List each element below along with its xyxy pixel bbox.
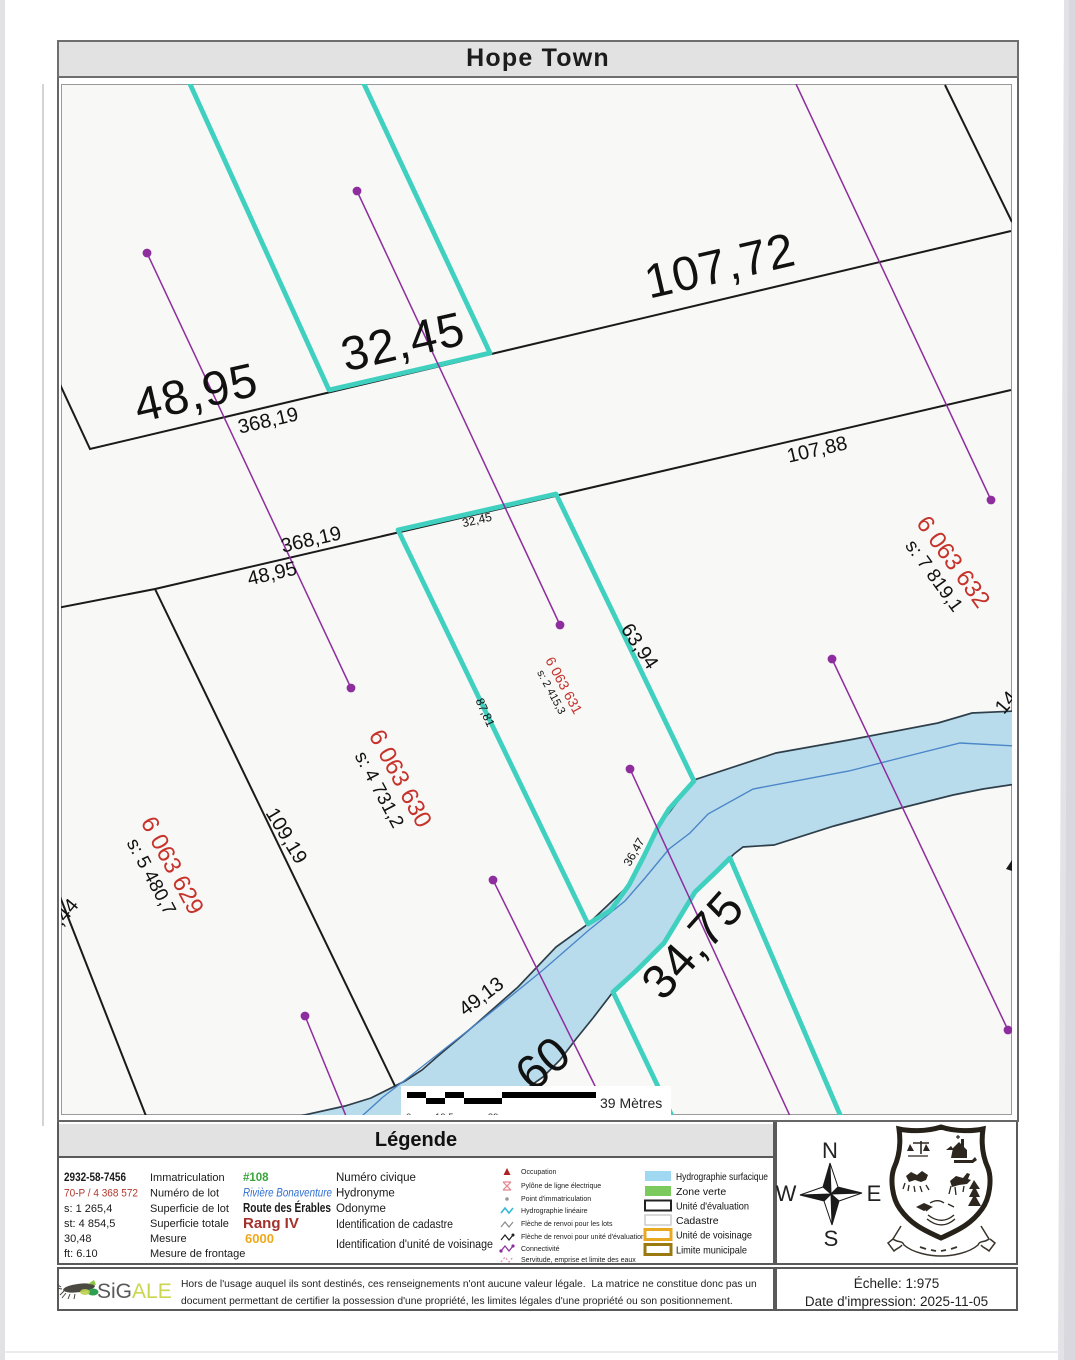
svg-text:Pylône de ligne électrique: Pylône de ligne électrique [521, 1183, 601, 1190]
svg-text:s: 1 265,4: s: 1 265,4 [64, 1203, 112, 1215]
svg-text:ft: 6.10: ft: 6.10 [64, 1248, 98, 1260]
svg-text:Superficie totale: Superficie totale [150, 1218, 229, 1230]
svg-text:0 19,5 39: 0 19,5 39 [406, 1112, 498, 1122]
svg-text:Immatriculation: Immatriculation [150, 1172, 225, 1184]
svg-text:Hydrographie surfacique: Hydrographie surfacique [676, 1171, 768, 1183]
svg-text:st: 4 854,5: st: 4 854,5 [64, 1218, 115, 1230]
svg-text:Rang IV: Rang IV [243, 1215, 299, 1232]
svg-text:E: E [867, 1181, 882, 1206]
svg-text:W: W [776, 1181, 797, 1206]
svg-text:Connectivité: Connectivité [521, 1246, 560, 1253]
svg-text:Identification d'unité de vois: Identification d'unité de voisinage [336, 1239, 493, 1251]
svg-text:N: N [822, 1138, 838, 1163]
svg-text:SiGALE: SiGALE [97, 1280, 172, 1303]
svg-text:Hydrographie linéaire: Hydrographie linéaire [521, 1208, 588, 1215]
svg-text:Flèche de renvoi pour les lots: Flèche de renvoi pour les lots [521, 1221, 613, 1228]
svg-text:Cadastre: Cadastre [676, 1215, 719, 1227]
svg-text:Flèche de renvoi pour unité d': Flèche de renvoi pour unité d'évaluation [521, 1234, 645, 1241]
svg-text:39 Mètres: 39 Mètres [600, 1095, 662, 1111]
svg-text:Zone verte: Zone verte [676, 1186, 726, 1198]
svg-text:Mesure: Mesure [150, 1233, 187, 1245]
svg-text:6000: 6000 [245, 1231, 274, 1246]
svg-text:Numéro de lot: Numéro de lot [150, 1188, 219, 1200]
svg-text:70-P / 4 368 572: 70-P / 4 368 572 [64, 1188, 138, 1200]
svg-text:Hydronyme: Hydronyme [336, 1188, 395, 1200]
svg-text:Odonyme: Odonyme [336, 1203, 386, 1215]
svg-text:Superficie de lot: Superficie de lot [150, 1203, 229, 1215]
svg-text:30,48: 30,48 [64, 1233, 92, 1245]
svg-text:Route des Érables: Route des Érables [243, 1200, 331, 1215]
svg-text:2932-58-7456: 2932-58-7456 [64, 1172, 126, 1184]
svg-text:Occupation: Occupation [521, 1169, 557, 1176]
svg-text:Identification de cadastre: Identification de cadastre [336, 1219, 453, 1231]
svg-text:Unité d'évaluation: Unité d'évaluation [676, 1201, 749, 1213]
svg-text:Servitude, emprise et limite d: Servitude, emprise et limite des eaux [521, 1257, 636, 1264]
svg-text:Limite municipale: Limite municipale [676, 1245, 747, 1257]
svg-text:Unité de voisinage: Unité de voisinage [676, 1230, 752, 1242]
svg-text:Rivière Bonaventure: Rivière Bonaventure [243, 1188, 332, 1200]
svg-text:#108: #108 [243, 1172, 269, 1184]
svg-text:Numéro civique: Numéro civique [336, 1172, 416, 1184]
svg-text:Mesure de frontage: Mesure de frontage [150, 1248, 245, 1260]
svg-text:S: S [824, 1226, 839, 1251]
svg-text:Point d'immatriculation: Point d'immatriculation [521, 1196, 591, 1203]
